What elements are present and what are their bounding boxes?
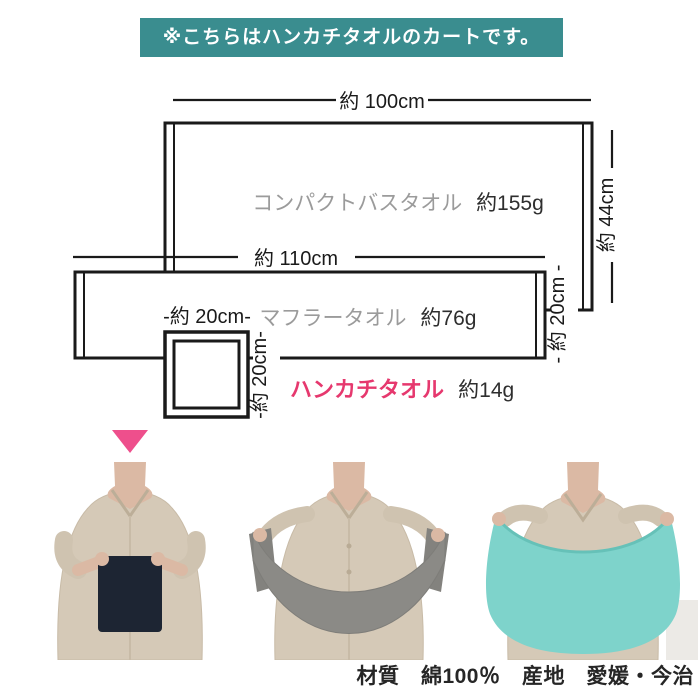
handkerchief-towel-outline <box>165 332 248 417</box>
left-hand <box>492 512 506 526</box>
photo-handkerchief-towel <box>30 462 230 660</box>
photo-muffler-illustration <box>237 462 461 660</box>
muffler-width-label: 約 110cm <box>254 247 338 270</box>
bath-height-label: 約 44cm <box>595 178 618 252</box>
photo-row <box>30 462 700 660</box>
shirt-button <box>347 570 352 575</box>
muffler-towel-weight: 約76g <box>420 307 476 330</box>
muffler-towel-name: マフラータオル <box>260 307 407 330</box>
photo-handkerchief-illustration <box>30 462 230 660</box>
photo-bath-towel <box>468 462 698 660</box>
right-hand <box>151 552 165 566</box>
bath-width-label: 約 100cm <box>339 90 425 113</box>
handkerchief-height-label: -約 20cm- <box>248 331 271 419</box>
bath-height-dimension: 約 44cm <box>595 130 618 303</box>
bath-towel-weight: 約155g <box>476 192 544 215</box>
left-sleeve <box>505 513 540 519</box>
muffler-height-dimension: - 約 20cm - <box>546 262 578 366</box>
handkerchief-width-label: -約 20cm- <box>163 305 251 328</box>
bath-towel-name: コンパクトバスタオル <box>252 192 462 215</box>
material-origin-caption: 材質 綿100％ 産地 愛媛・今治 <box>4 660 694 690</box>
shirt-button <box>347 544 352 549</box>
bath-towel-label: コンパクトバスタオル 約155g <box>252 192 544 215</box>
pink-arrow-down-icon <box>112 430 148 453</box>
right-hand <box>660 512 674 526</box>
handkerchief-towel-shape <box>98 556 162 632</box>
handkerchief-towel-label: ハンカチタオル 約14g <box>290 377 514 402</box>
photo-bath-illustration <box>468 462 698 660</box>
photo-muffler-towel <box>237 462 461 660</box>
muffler-towel-label: マフラータオル 約76g <box>260 307 477 330</box>
right-hand <box>431 528 445 542</box>
material-origin-text: 材質 綿100％ 産地 愛媛・今治 <box>356 665 694 688</box>
product-infographic: ※こちらはハンカチタオルのカートです。 約 100cm 約 44cm 約 110… <box>0 0 700 700</box>
left-hand <box>95 552 109 566</box>
bath-width-dimension: 約 100cm <box>173 90 591 113</box>
right-sleeve <box>626 513 661 519</box>
handkerchief-height-dimension: -約 20cm- <box>248 328 280 424</box>
handkerchief-towel-name: ハンカチタオル <box>290 377 444 402</box>
left-hand <box>253 528 267 542</box>
handkerchief-towel-weight: 約14g <box>458 379 514 402</box>
muffler-height-label: - 約 20cm - <box>546 265 569 364</box>
